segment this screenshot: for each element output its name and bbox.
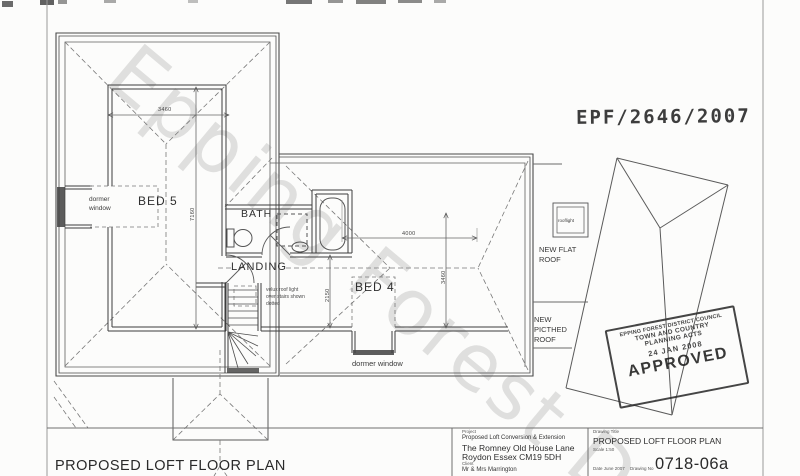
velux-note: velux roof lightover stairs showndotted: [266, 287, 305, 308]
dim-bed5-length: 7160: [190, 208, 196, 221]
planning-reference-stamp: EPF/2646/2007: [576, 105, 751, 129]
bath-tub: [320, 198, 345, 250]
project-label: Project: [462, 429, 476, 434]
new-flat-roof-label: NEW FLATROOF: [539, 245, 576, 265]
new-pitched-roof-label: NEWPICTHEDROOF: [534, 315, 567, 344]
rooflight-label: rooflight: [558, 218, 574, 223]
date-label: Date June 2007: [593, 466, 625, 471]
toilet: [227, 229, 252, 247]
shower-dashed: [277, 214, 307, 246]
basin: [292, 242, 308, 252]
drawing-title-label: Drawing Title: [593, 429, 619, 434]
dim-bed4-width: 4000: [402, 231, 415, 237]
dim-landing-depth: 2150: [325, 289, 331, 302]
client-label: Client: [462, 461, 474, 466]
dormer-window-left-label: dormerwindow: [89, 196, 111, 214]
room-label-bed4: BED 4: [355, 280, 395, 294]
plan-caption: PROPOSED LOFT FLOOR PLAN: [55, 458, 286, 474]
room-label-bath: BATH: [241, 208, 272, 220]
project-line3: Roydon Essex CM19 5DH: [462, 452, 561, 462]
project-line1: Proposed Loft Conversion & Extension: [462, 435, 565, 441]
drawing-no-label: Drawing No: [630, 466, 654, 471]
room-label-landing: LANDING: [231, 261, 287, 273]
scan-artifacts: [2, 0, 446, 7]
landing-stairs: [196, 283, 261, 373]
drawing-no-value: 0718-06a: [655, 455, 729, 474]
client-name: Mr & Mrs Marrington: [462, 467, 517, 473]
bed5-room-walls: [108, 85, 226, 331]
dim-bed5-width: 3460: [158, 107, 171, 113]
floor-plan-drawing: [0, 0, 800, 476]
dormer-window-bottom-label: dormer window: [352, 359, 403, 368]
room-label-bed5: BED 5: [138, 194, 178, 208]
scanned-floor-plan-page: Epping Forest DC: [0, 0, 800, 476]
dim-bed4-depth: 3460: [441, 271, 447, 284]
drawing-title: PROPOSED LOFT FLOOR PLAN: [593, 436, 721, 446]
door-swings: [226, 227, 290, 283]
scale-label: Scale 1:50: [593, 447, 614, 452]
